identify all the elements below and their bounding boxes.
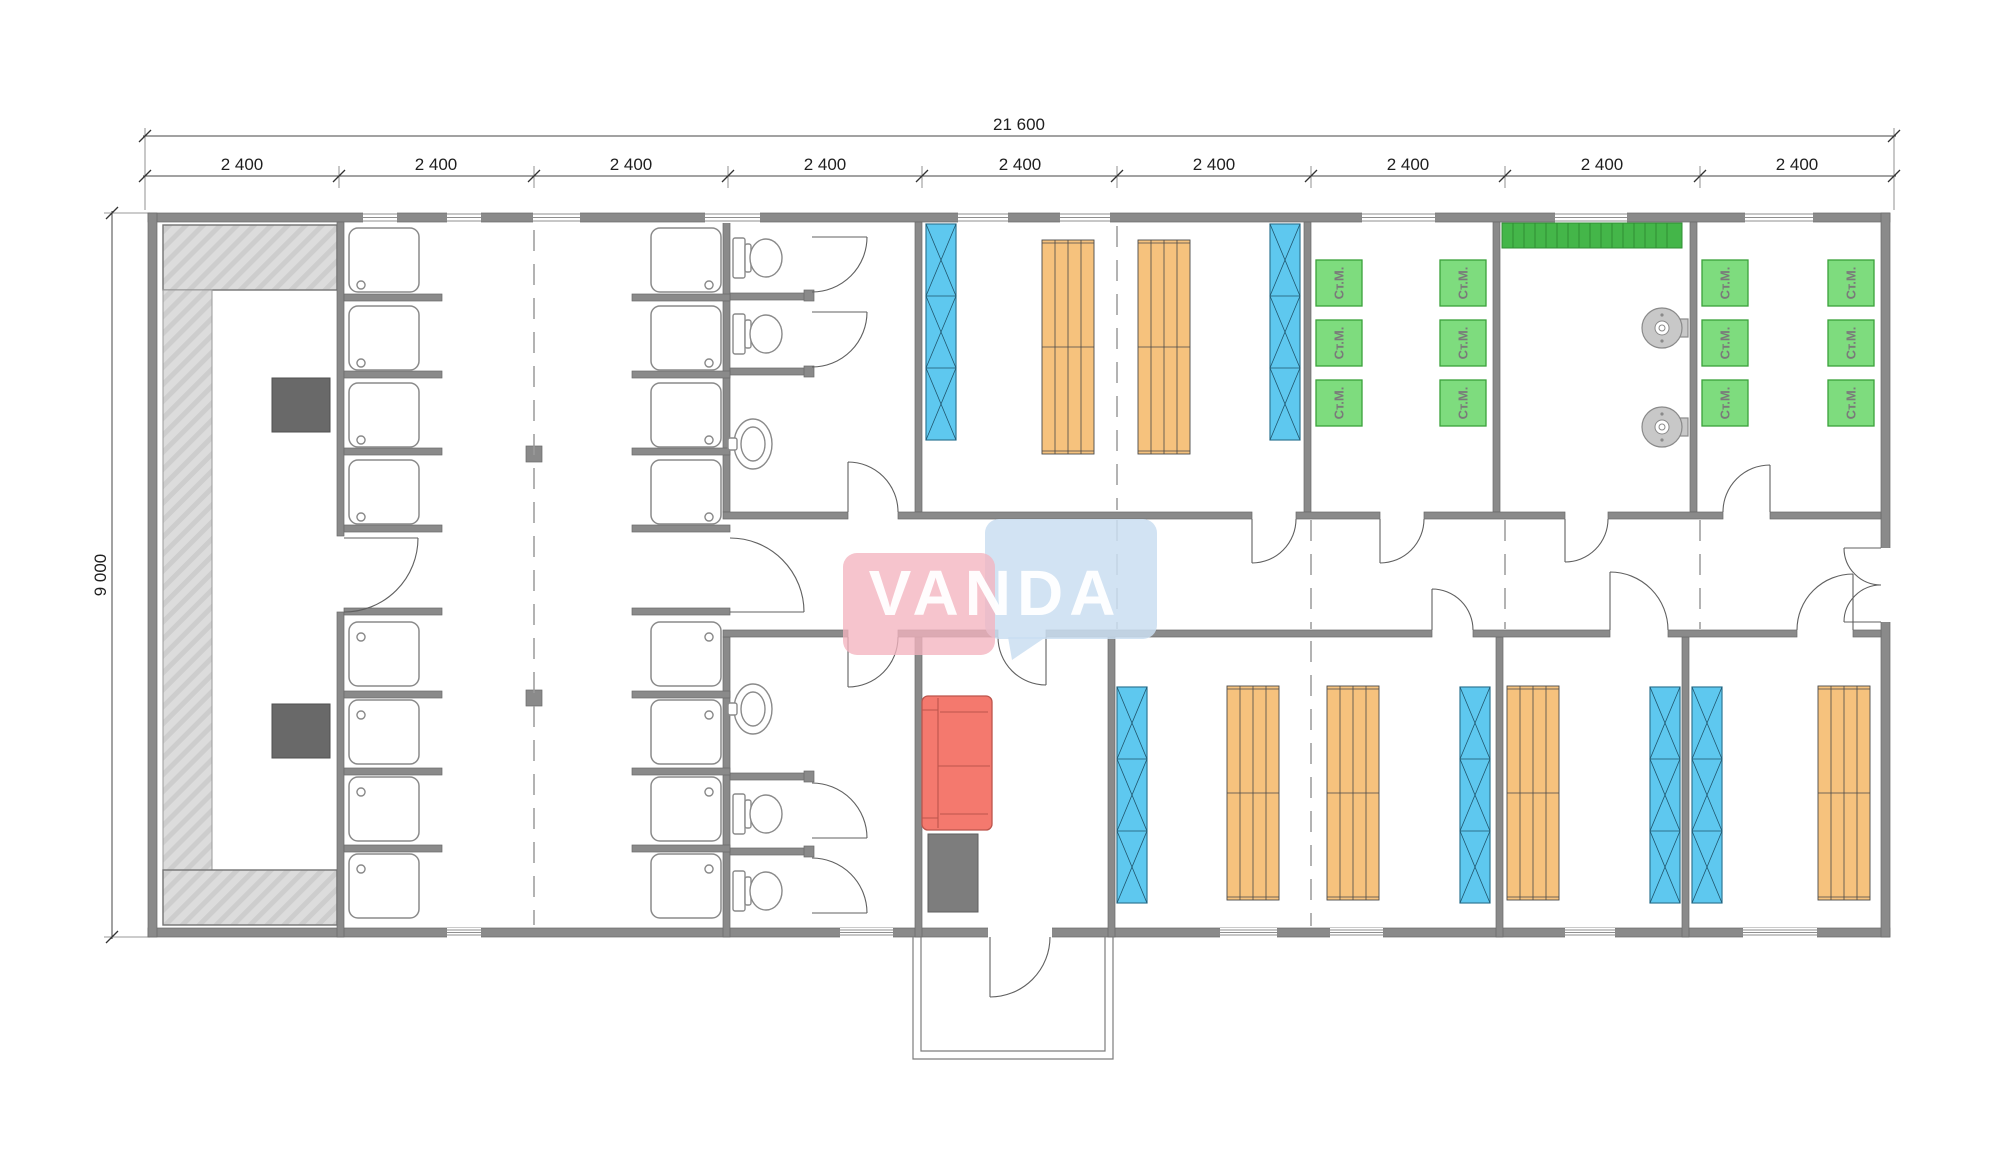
- shower-tray: [651, 854, 721, 918]
- floor-plan-page: Ст.М. 21 600 2 400 2 400 2 400 2 400 2 4…: [0, 0, 2000, 1173]
- door-wc-stall: [812, 783, 867, 838]
- washing-machine: [1440, 260, 1486, 306]
- dimension-module-width: 2 400: [1387, 155, 1430, 174]
- spin-dryer: [1642, 308, 1688, 348]
- door-wc-stall: [812, 237, 867, 292]
- floor-plan: Ст.М. 21 600 2 400 2 400 2 400 2 400 2 4…: [0, 0, 2000, 1173]
- wardrobe: [1460, 687, 1490, 903]
- washing-machine: [1828, 380, 1874, 426]
- dimension-module-width: 2 400: [1581, 155, 1624, 174]
- washing-machine: [1702, 380, 1748, 426]
- room-bedroom-top: [922, 222, 1304, 512]
- shower-tray: [349, 777, 419, 841]
- door-sauna: [344, 538, 418, 612]
- bunk-bed: [1042, 240, 1094, 454]
- toilet: [733, 794, 782, 834]
- wardrobe: [926, 224, 956, 440]
- sauna-stove: [272, 704, 330, 758]
- door-laundry-1: [1380, 519, 1424, 563]
- bunk-bed: [1327, 686, 1379, 900]
- door-drying: [1565, 519, 1608, 562]
- watermark: VANDA: [843, 519, 1157, 660]
- drying-rack: [1502, 223, 1682, 248]
- dimension-module-width: 2 400: [221, 155, 264, 174]
- sink: [728, 684, 772, 734]
- door-entrance: [990, 937, 1050, 997]
- dimension-module-width: 2 400: [610, 155, 653, 174]
- shower-tray: [651, 622, 721, 686]
- dimension-module-width: 2 400: [1776, 155, 1819, 174]
- bunk-bed: [1818, 686, 1870, 900]
- door-bedroom-2: [1610, 572, 1668, 630]
- washing-machine: [1828, 320, 1874, 366]
- washing-machine: [1316, 260, 1362, 306]
- sauna-stove: [272, 378, 330, 432]
- sanitary: [728, 238, 782, 911]
- toilet: [733, 314, 782, 354]
- drying-room-equipment: [1502, 223, 1688, 447]
- lounge-furniture: [922, 696, 992, 912]
- dimension-height: 9 000: [91, 554, 110, 597]
- shower-tray: [651, 777, 721, 841]
- sauna-benches: [163, 225, 337, 925]
- washing-machine: [1702, 320, 1748, 366]
- spin-dryer: [1642, 407, 1688, 447]
- door-washroom-lobby: [730, 538, 804, 612]
- toilet: [733, 238, 782, 278]
- door-side-exit: [1844, 548, 1881, 622]
- door-wc-stall: [812, 312, 867, 367]
- dimension-module-width: 2 400: [1193, 155, 1236, 174]
- door-wc-stall: [812, 858, 867, 913]
- washing-machine: [1702, 260, 1748, 306]
- wardrobe: [1270, 224, 1300, 440]
- washing-machine: [1316, 320, 1362, 366]
- shower-trays: [349, 228, 721, 918]
- shower-tray: [349, 622, 419, 686]
- bench-bottom: [163, 870, 337, 925]
- wardrobe: [1117, 687, 1147, 903]
- entrance-door-opening: [988, 927, 1052, 938]
- bench-top: [163, 225, 337, 290]
- washing-machine: [1316, 380, 1362, 426]
- watermark-logo-text: VANDA: [869, 557, 1122, 629]
- dimension-total-width: 21 600: [993, 115, 1045, 134]
- table: [928, 834, 978, 912]
- sink: [728, 419, 772, 469]
- washing-machine: [1828, 260, 1874, 306]
- wardrobe: [1692, 687, 1722, 903]
- side-exit-opening: [1880, 548, 1891, 622]
- shower-tray: [349, 700, 419, 764]
- bench-left: [163, 290, 212, 870]
- washing-machine: [1440, 380, 1486, 426]
- dimension-module-width: 2 400: [415, 155, 458, 174]
- washing-machine: [1440, 320, 1486, 366]
- toilet: [733, 871, 782, 911]
- dimension-module-width: 2 400: [999, 155, 1042, 174]
- shower-tray: [651, 700, 721, 764]
- shower-tray: [349, 854, 419, 918]
- door-bedroom-1: [1432, 589, 1473, 630]
- door-lobby-top: [848, 462, 898, 512]
- room-drying: [1500, 222, 1690, 512]
- dimension-module-width: 2 400: [804, 155, 847, 174]
- door-laundry-2: [1723, 465, 1770, 512]
- bunk-bed: [1507, 686, 1559, 900]
- washing-machines: [1316, 260, 1874, 426]
- entrance-porch: [913, 937, 1113, 1059]
- door-bedroom-top: [1252, 519, 1296, 563]
- wardrobe: [1650, 687, 1680, 903]
- sofa: [922, 696, 992, 830]
- bunk-bed: [1138, 240, 1190, 454]
- room-bedroom-1: [1115, 637, 1496, 928]
- bunk-bed: [1227, 686, 1279, 900]
